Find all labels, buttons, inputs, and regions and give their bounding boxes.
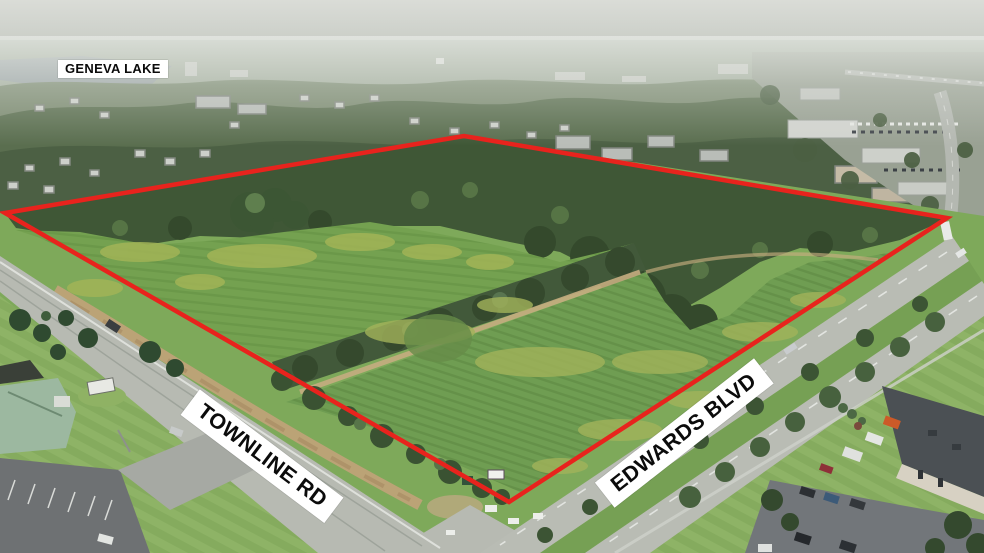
parcel-sign: [488, 470, 504, 479]
field-worn-patch: [404, 314, 472, 362]
aerial-photo-scene: [0, 0, 984, 553]
atmospheric-haze: [0, 36, 984, 146]
aerial-photo-listing-image: GENEVA LAKE TOWNLINE RD EDWARDS BLVD: [0, 0, 984, 553]
geneva-lake-label: GENEVA LAKE: [58, 60, 168, 78]
